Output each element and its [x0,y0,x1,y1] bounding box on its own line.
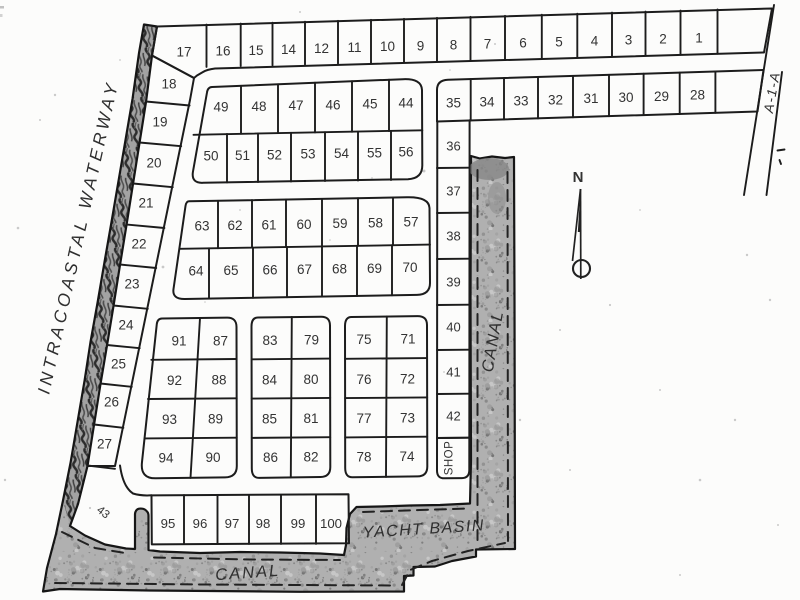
svg-text:45: 45 [362,97,377,112]
svg-text:71: 71 [400,332,415,347]
svg-text:76: 76 [356,372,371,387]
svg-text:70: 70 [402,260,417,275]
svg-text:81: 81 [303,411,318,426]
svg-text:59: 59 [332,216,347,231]
svg-text:84: 84 [262,373,278,388]
svg-text:65: 65 [223,263,238,278]
svg-text:41: 41 [446,365,460,380]
svg-text:5: 5 [555,35,563,50]
svg-text:69: 69 [367,261,382,276]
svg-text:61: 61 [261,217,276,232]
svg-text:57: 57 [403,215,418,230]
svg-text:33: 33 [513,94,528,109]
svg-text:49: 49 [213,100,228,115]
svg-text:18: 18 [161,77,176,92]
svg-text:47: 47 [288,98,303,113]
svg-text:77: 77 [356,411,371,426]
svg-text:14: 14 [281,42,297,57]
svg-text:1: 1 [695,31,703,46]
svg-text:67: 67 [297,262,312,277]
svg-text:93: 93 [162,412,177,427]
svg-text:12: 12 [314,41,329,56]
svg-text:87: 87 [213,334,228,349]
svg-text:6: 6 [519,36,527,51]
svg-text:SHOP: SHOP [444,441,456,476]
svg-text:25: 25 [111,357,126,372]
svg-text:100: 100 [320,516,342,531]
svg-text:10: 10 [380,39,395,54]
svg-text:46: 46 [325,97,340,112]
svg-text:75: 75 [356,332,371,347]
svg-text:22: 22 [131,237,146,252]
svg-text:7: 7 [484,36,492,51]
svg-text:19: 19 [152,115,167,130]
svg-text:74: 74 [399,449,415,464]
svg-text:35: 35 [446,96,461,111]
svg-text:85: 85 [262,412,277,427]
svg-text:36: 36 [446,139,460,154]
svg-text:63: 63 [194,219,209,234]
svg-text:91: 91 [171,334,186,349]
svg-text:95: 95 [161,516,176,531]
svg-text:24: 24 [118,318,134,333]
svg-text:60: 60 [296,217,311,232]
svg-text:52: 52 [267,147,282,162]
svg-text:64: 64 [188,264,204,279]
svg-text:82: 82 [303,450,318,465]
svg-text:4: 4 [591,34,599,49]
svg-text:9: 9 [417,38,425,53]
svg-text:48: 48 [251,99,266,114]
svg-text:21: 21 [138,196,153,211]
svg-text:73: 73 [400,411,415,426]
svg-text:97: 97 [225,516,240,531]
svg-text:29: 29 [654,89,669,104]
svg-text:56: 56 [398,145,413,160]
svg-text:98: 98 [256,516,271,531]
svg-text:88: 88 [211,373,226,388]
svg-text:40: 40 [446,320,460,335]
svg-text:16: 16 [215,44,230,59]
svg-text:3: 3 [625,33,633,48]
svg-text:31: 31 [583,91,598,106]
svg-text:62: 62 [227,218,242,233]
svg-text:50: 50 [203,149,218,164]
svg-text:27: 27 [97,437,112,452]
svg-text:30: 30 [618,90,633,105]
svg-text:89: 89 [208,412,223,427]
svg-text:20: 20 [146,156,161,171]
svg-text:34: 34 [479,95,495,110]
svg-text:68: 68 [332,261,347,276]
svg-text:55: 55 [367,145,382,160]
svg-text:37: 37 [446,184,460,199]
svg-text:51: 51 [235,148,250,163]
svg-text:N: N [573,169,584,186]
svg-text:99: 99 [291,516,306,531]
svg-text:17: 17 [176,45,191,60]
svg-text:54: 54 [334,146,350,161]
svg-text:44: 44 [398,96,414,111]
svg-text:32: 32 [548,92,563,107]
svg-text:2: 2 [659,32,667,47]
svg-text:15: 15 [248,43,263,58]
svg-text:83: 83 [262,333,277,348]
svg-text:28: 28 [690,88,705,103]
svg-text:42: 42 [446,409,460,424]
svg-text:66: 66 [262,263,277,278]
svg-text:72: 72 [400,372,415,387]
svg-text:79: 79 [304,333,319,348]
svg-text:94: 94 [158,451,174,466]
svg-text:78: 78 [356,450,371,465]
svg-text:11: 11 [347,40,361,55]
svg-text:92: 92 [167,373,182,388]
svg-text:96: 96 [193,516,208,531]
svg-text:23: 23 [124,277,139,292]
svg-text:8: 8 [450,37,458,52]
svg-text:58: 58 [368,215,383,230]
svg-text:80: 80 [303,372,318,387]
svg-text:53: 53 [300,147,315,162]
svg-text:26: 26 [104,395,119,410]
svg-text:39: 39 [446,275,460,290]
svg-text:90: 90 [205,450,220,465]
svg-text:38: 38 [446,229,460,244]
svg-text:86: 86 [263,450,278,465]
